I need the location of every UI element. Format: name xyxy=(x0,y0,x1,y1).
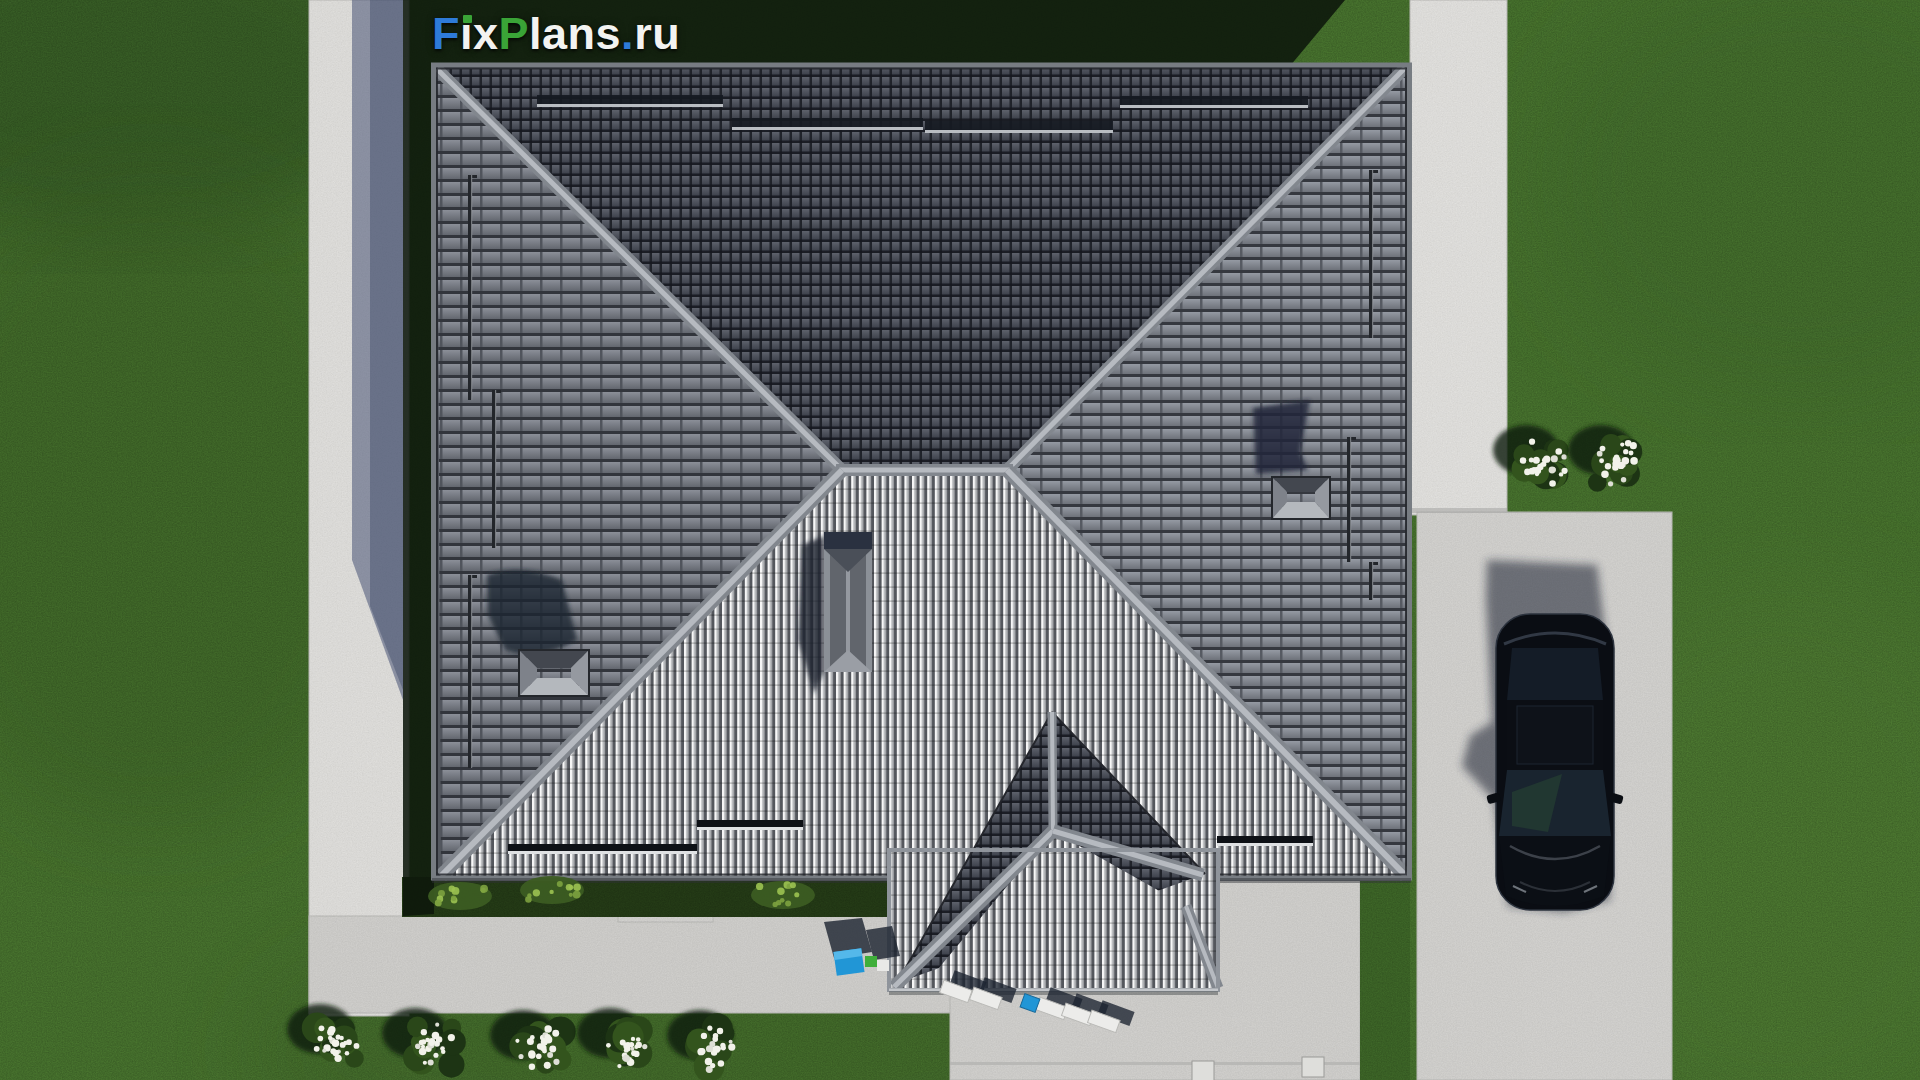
bush-flower xyxy=(718,1060,724,1066)
roof-pipe-highlight xyxy=(1350,437,1351,562)
shrub xyxy=(751,881,815,909)
bush-flower xyxy=(1555,448,1562,455)
bush-flower xyxy=(421,1029,427,1035)
bush-flower xyxy=(636,1037,641,1042)
bush-flower xyxy=(419,1048,427,1056)
shrub-leaf xyxy=(777,888,784,895)
bush-flower xyxy=(428,1059,434,1065)
bush-flower xyxy=(314,1046,320,1052)
roof-vent-east-shadow xyxy=(1253,400,1310,474)
roof-pipe-hook xyxy=(1347,437,1356,440)
bush-flower xyxy=(729,1040,733,1044)
roof xyxy=(432,63,1411,963)
roof-pipe-highlight xyxy=(1372,562,1373,600)
shrub xyxy=(520,876,584,904)
bush-flower xyxy=(515,1039,519,1043)
roof-pipe-hook xyxy=(1369,170,1378,173)
bush-flower xyxy=(332,1040,339,1047)
bush-flower xyxy=(706,1045,713,1052)
shrub-leaf xyxy=(569,893,573,897)
bush-flower xyxy=(1597,451,1603,457)
roof-pipe-hook xyxy=(492,390,501,393)
bush-flower xyxy=(322,1049,326,1053)
bush-flower xyxy=(1535,472,1539,476)
roof-pipe-highlight xyxy=(471,175,472,400)
bush-flower xyxy=(536,1053,542,1059)
bush-flower xyxy=(1623,449,1628,454)
bush-flower xyxy=(1551,455,1558,462)
snow-guard-bar xyxy=(508,844,697,851)
bush-flower xyxy=(1533,457,1540,464)
bush-flower xyxy=(617,1064,621,1068)
bush-flower xyxy=(339,1036,343,1040)
bush-flower xyxy=(629,1042,634,1047)
bush-flower xyxy=(545,1034,551,1040)
logo-segment: ru xyxy=(634,8,680,60)
bush-flower xyxy=(319,1025,325,1031)
logo-segment: x xyxy=(473,8,499,60)
roof-pipe-hook xyxy=(468,575,477,578)
snow-guard-bar xyxy=(732,118,923,127)
bush-flower xyxy=(1620,442,1624,446)
bush-flower xyxy=(701,1033,707,1039)
bush-flower xyxy=(540,1045,546,1051)
shrub-leaf xyxy=(785,900,791,906)
shrub-leaf xyxy=(573,891,581,899)
fixplans-logo[interactable]: FıxPlans.ru xyxy=(432,8,680,60)
bush-flower xyxy=(1629,451,1634,456)
shrub-leaf xyxy=(790,882,796,888)
toy-green xyxy=(865,956,877,967)
roof-pipe-highlight xyxy=(471,575,472,768)
bush-flower xyxy=(630,1047,634,1051)
shrub-leaf xyxy=(452,887,460,895)
car xyxy=(1486,614,1624,910)
logo-segment: . xyxy=(621,8,634,60)
bush-flower xyxy=(1605,463,1611,469)
shrub-leaf xyxy=(525,896,532,903)
shrub-leaf xyxy=(533,889,540,896)
snow-guard-rail xyxy=(697,827,803,830)
bush-flower xyxy=(436,1036,443,1043)
snow-guard-rail xyxy=(732,127,923,130)
shrub-leaf xyxy=(480,885,488,893)
roof-pipe-highlight xyxy=(495,390,496,548)
bush-flower xyxy=(721,1046,726,1051)
bush-flower xyxy=(423,1061,427,1065)
snow-guard-bar xyxy=(925,121,1113,130)
bush-flower xyxy=(1625,440,1632,447)
bush-flower xyxy=(713,1033,718,1038)
bush-flower xyxy=(634,1045,638,1049)
shrub-leaf xyxy=(451,896,456,901)
bush-flower xyxy=(544,1025,551,1032)
snow-guard-rail xyxy=(508,851,697,854)
bush-flower xyxy=(544,1062,551,1069)
logo-segment: ı xyxy=(460,8,473,60)
snow-guard-bar xyxy=(697,820,803,827)
logo-segment: lans xyxy=(529,8,621,60)
bush-flower xyxy=(327,1029,334,1036)
bush-flower xyxy=(699,1048,706,1055)
bush-flower xyxy=(415,1043,421,1049)
bush-flower xyxy=(547,1052,553,1058)
render-stage: FixPlans.ru xyxy=(0,0,1920,1080)
car-hood xyxy=(1499,836,1611,906)
shrub-leaf xyxy=(435,899,442,906)
bush-flower xyxy=(1630,457,1638,465)
bush-flower xyxy=(624,1048,629,1053)
bush-flower xyxy=(642,1044,647,1049)
bush-flower xyxy=(425,1038,430,1043)
shrub-leaf xyxy=(549,890,553,894)
bush-flower xyxy=(1612,461,1618,467)
bush-flower xyxy=(728,1043,735,1050)
bush-flower xyxy=(1549,480,1556,487)
shrub-leaf xyxy=(756,883,763,890)
bush-flower xyxy=(606,1043,611,1048)
snow-guard-bar xyxy=(1120,96,1308,105)
bush-flower xyxy=(1559,472,1563,476)
roof-pipe-hook xyxy=(468,175,477,178)
snow-guard-bar xyxy=(537,95,723,104)
paver xyxy=(1192,1061,1214,1080)
roof-pipe-highlight xyxy=(1372,170,1373,338)
bush-flower xyxy=(631,1037,635,1041)
shrub-leaf xyxy=(568,885,573,890)
bush-flower xyxy=(1621,477,1626,482)
logo-segment: F xyxy=(432,8,460,60)
bush-flower xyxy=(1600,446,1606,452)
chimney xyxy=(798,532,872,694)
bush-flower xyxy=(429,1041,434,1046)
bush-foliage xyxy=(438,1052,464,1078)
bush-flower xyxy=(1531,467,1536,472)
scene-svg xyxy=(0,0,1920,1080)
bush-flower xyxy=(549,1046,556,1053)
toy-white xyxy=(877,960,889,971)
snow-guard-rail xyxy=(537,104,723,107)
bush-flower xyxy=(552,1030,559,1037)
bush-flower xyxy=(1529,439,1535,445)
snow-guard-rail xyxy=(1120,105,1308,108)
bush-flower xyxy=(528,1051,535,1058)
bush-flower xyxy=(433,1053,438,1058)
logo-segment: P xyxy=(499,8,530,60)
logo-i-dot xyxy=(463,15,472,23)
bush-flower xyxy=(717,1028,723,1034)
bush-flower xyxy=(346,1039,352,1045)
bush-flower xyxy=(529,1064,535,1070)
bush-flower xyxy=(318,1036,324,1042)
snow-guard-rail xyxy=(925,130,1113,133)
bush-flower xyxy=(345,1051,350,1056)
bush-flower xyxy=(435,1023,439,1027)
bush-flower xyxy=(553,1059,559,1065)
shrub-leaf xyxy=(780,898,785,903)
bush-flower xyxy=(710,1063,715,1068)
car-sunroof xyxy=(1517,706,1593,764)
bush-flower xyxy=(518,1054,523,1059)
bush-flower xyxy=(1520,457,1527,464)
shrub-leaf xyxy=(794,892,799,897)
bush-flower xyxy=(633,1051,639,1057)
bush-flower xyxy=(1622,457,1630,465)
snow-guard-bar xyxy=(1217,836,1313,843)
bush-flower xyxy=(1549,466,1556,473)
shrub xyxy=(428,882,492,910)
bush-flower xyxy=(1608,481,1613,486)
shrub-leaf xyxy=(573,883,580,890)
snow-guard-rail xyxy=(1217,843,1313,846)
bush-flower xyxy=(713,1045,720,1052)
bush-foliage xyxy=(1600,434,1621,455)
shrub-leaf xyxy=(557,881,563,887)
paver xyxy=(1302,1057,1324,1077)
bush-flower xyxy=(441,1049,446,1054)
bush-flower xyxy=(623,1055,630,1062)
bush-flower xyxy=(623,1043,627,1047)
bush-flower xyxy=(1561,454,1566,459)
bush-flower xyxy=(1601,471,1608,478)
bush-flower xyxy=(707,1026,712,1031)
bush-flower xyxy=(1599,458,1604,463)
bush-flower xyxy=(328,1036,332,1040)
bush-flower xyxy=(448,1034,455,1041)
bush-flower xyxy=(332,1050,339,1057)
bush-flower xyxy=(354,1043,360,1049)
roof-pipe-hook xyxy=(1369,562,1378,565)
bush-flower xyxy=(527,1038,534,1045)
car-rear-window xyxy=(1507,648,1603,700)
